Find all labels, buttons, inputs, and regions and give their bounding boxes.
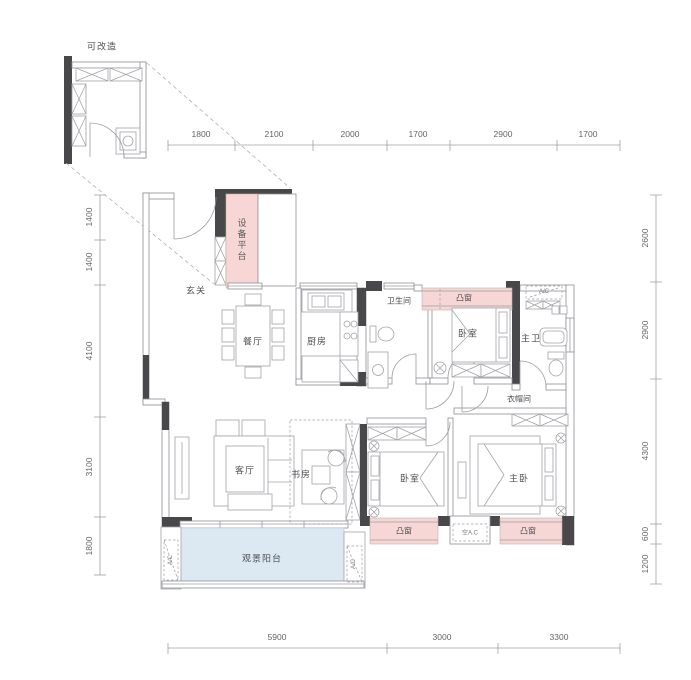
room-label-master-bath: 主卫 bbox=[521, 332, 541, 345]
room-label-entry: 玄关 bbox=[186, 284, 206, 297]
room-label-balcony: 观景阳台 bbox=[242, 552, 282, 565]
bay-window-top-label: 凸窗 bbox=[456, 293, 472, 304]
floor-plan-drawing bbox=[0, 0, 691, 680]
dim-top-5: 1700 bbox=[579, 129, 598, 139]
room-label-dining: 餐厅 bbox=[243, 335, 263, 348]
ac-top-label: A/C bbox=[539, 289, 549, 295]
dim-top-0: 1800 bbox=[192, 129, 211, 139]
room-label-kitchen: 厨房 bbox=[307, 335, 327, 348]
dim-left-0: 1400 bbox=[84, 208, 94, 227]
room-label-bedroom-second: 卧室 bbox=[400, 472, 420, 485]
ac-middle-label: 空A.C bbox=[462, 528, 478, 537]
ac-balcony-left-label: A/C bbox=[168, 555, 174, 565]
dim-top-1: 2100 bbox=[265, 129, 284, 139]
dim-top-4: 2900 bbox=[494, 129, 513, 139]
room-label-bathroom: 卫生间 bbox=[387, 296, 411, 307]
ac-balcony-right-label: A/C bbox=[351, 559, 357, 569]
room-label-living: 客厅 bbox=[235, 464, 255, 477]
dim-right-3: 600 bbox=[640, 527, 650, 541]
dim-right-1: 2900 bbox=[640, 321, 650, 340]
room-label-equipment-platform: 设备平台 bbox=[236, 218, 249, 262]
bay-window-left-label: 凸窗 bbox=[396, 526, 412, 537]
room-label-study: 书房 bbox=[291, 468, 311, 481]
dim-left-2: 4100 bbox=[84, 342, 94, 361]
floor-plan: 可改造 玄关 设备平台 餐厅 厨房 卫生间 凸窗 卧室 主卫 衣帽间 客厅 书房… bbox=[0, 0, 691, 680]
dim-top-2: 2000 bbox=[341, 129, 360, 139]
washer bbox=[116, 128, 140, 154]
bay-window-right-label: 凸窗 bbox=[520, 526, 536, 537]
dim-right-4: 1200 bbox=[640, 555, 650, 574]
room-label-closet: 衣帽间 bbox=[507, 394, 531, 405]
dim-top-3: 1700 bbox=[409, 129, 428, 139]
room-label-master-bedroom: 主卧 bbox=[509, 472, 529, 485]
inset-title: 可改造 bbox=[87, 40, 117, 53]
dim-bottom-2: 3300 bbox=[550, 632, 569, 642]
dim-right-0: 2600 bbox=[640, 229, 650, 248]
dim-left-4: 1800 bbox=[84, 537, 94, 556]
room-label-bedroom-top: 卧室 bbox=[458, 327, 478, 340]
dim-left-1: 1400 bbox=[84, 253, 94, 272]
dim-left-3: 3100 bbox=[84, 458, 94, 477]
dim-bottom-1: 3000 bbox=[433, 632, 452, 642]
dim-right-2: 4300 bbox=[640, 442, 650, 461]
dim-bottom-0: 5900 bbox=[268, 632, 287, 642]
